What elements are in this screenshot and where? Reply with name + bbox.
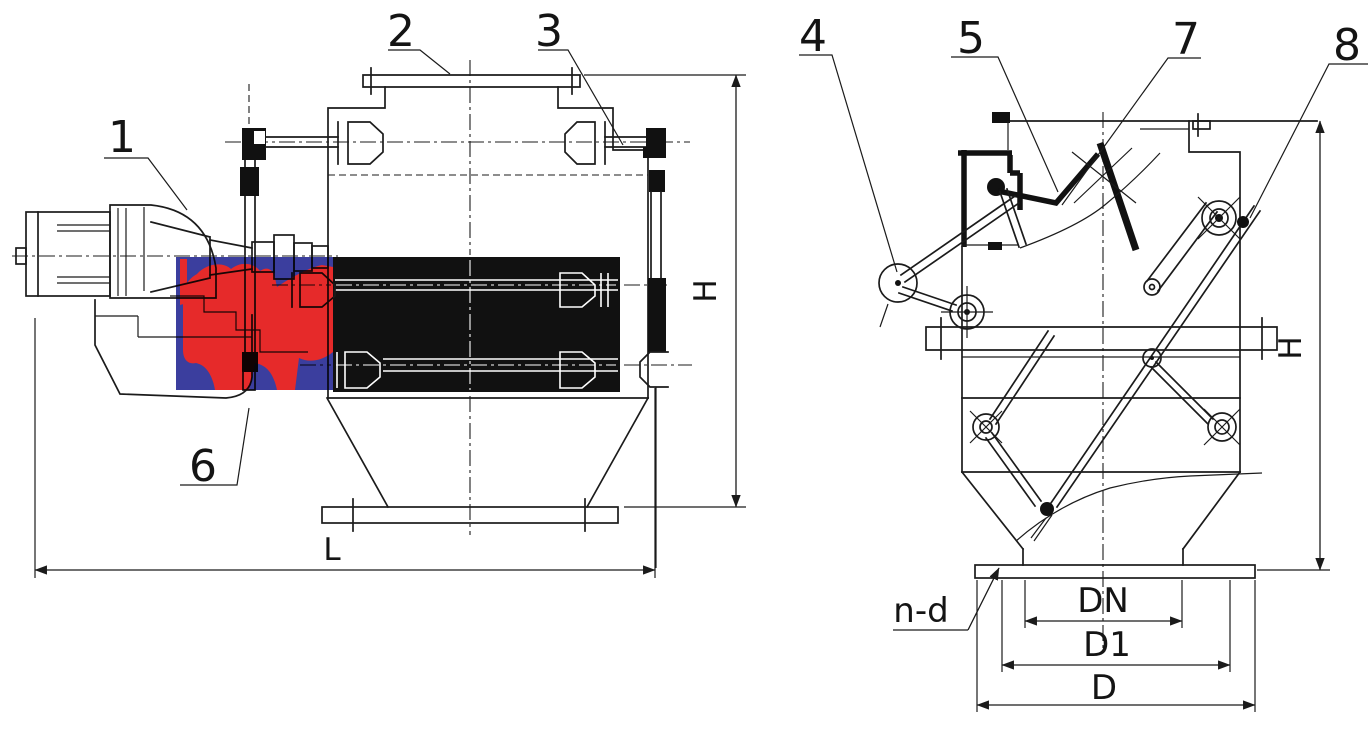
highlight-overlay — [176, 257, 333, 390]
dim-length-label: L — [323, 532, 341, 568]
rotor-dark-region — [272, 257, 692, 392]
dim-height-right-label: H — [1273, 336, 1309, 359]
callout-2: 2 — [387, 6, 415, 57]
dim-outlet-bore-label: DN — [1077, 581, 1129, 621]
internal-mechanism — [879, 143, 1277, 541]
right-view-callouts: 4 5 7 8 — [799, 11, 1368, 272]
separator-technical-drawing: L H 1 2 3 6 — [0, 0, 1372, 732]
engineering-drawing-page: L H 1 2 3 6 — [0, 0, 1372, 732]
callout-5: 5 — [957, 13, 985, 64]
callout-7: 7 — [1172, 14, 1200, 65]
hopper-left-view — [322, 398, 648, 531]
dim-flange-diameter-label: D — [1091, 668, 1117, 708]
dim-bolt-holes-label: n-d — [893, 591, 948, 631]
dimension-DN: DN — [1025, 580, 1182, 628]
callout-6: 6 — [189, 441, 217, 492]
callout-1: 1 — [108, 112, 136, 163]
left-view-side-elevation: L H 1 2 3 6 — [12, 6, 746, 578]
dim-height-left-label: H — [688, 279, 724, 302]
callout-4: 4 — [799, 11, 827, 62]
callout-3: 3 — [535, 6, 563, 57]
dim-bolt-circle-label: D1 — [1083, 625, 1131, 665]
callout-8: 8 — [1333, 20, 1361, 71]
right-view-front-section: H DN D1 D n-d 4 5 7 — [799, 11, 1368, 712]
dimension-H-right: H — [1257, 121, 1330, 570]
